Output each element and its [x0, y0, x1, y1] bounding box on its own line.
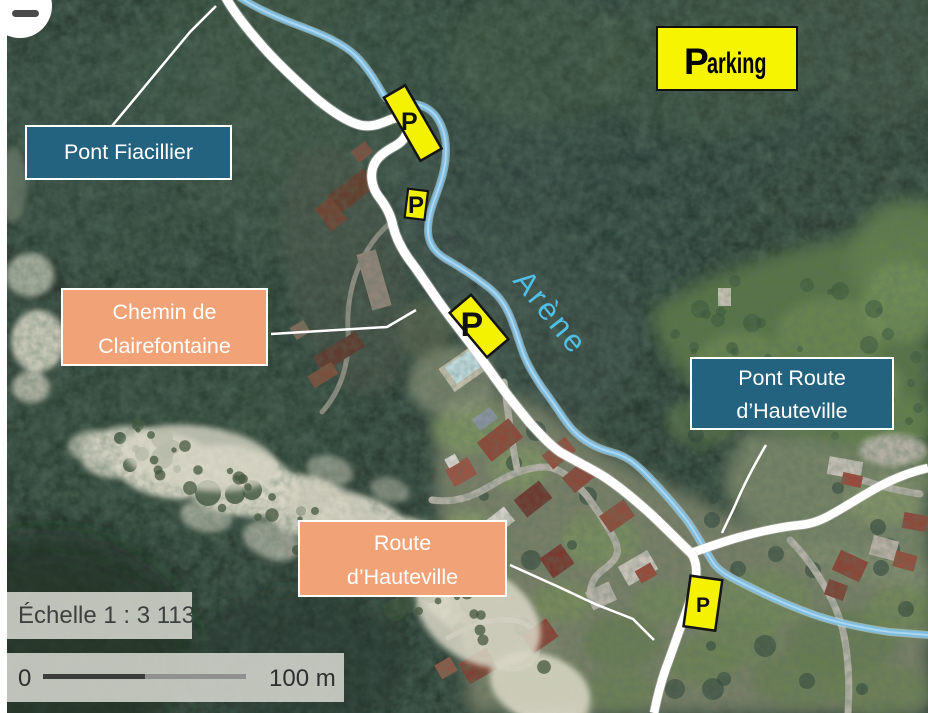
svg-text:P: P [461, 306, 484, 344]
svg-text:P: P [696, 594, 710, 617]
svg-text:P: P [408, 192, 424, 219]
svg-text:P: P [401, 108, 418, 136]
